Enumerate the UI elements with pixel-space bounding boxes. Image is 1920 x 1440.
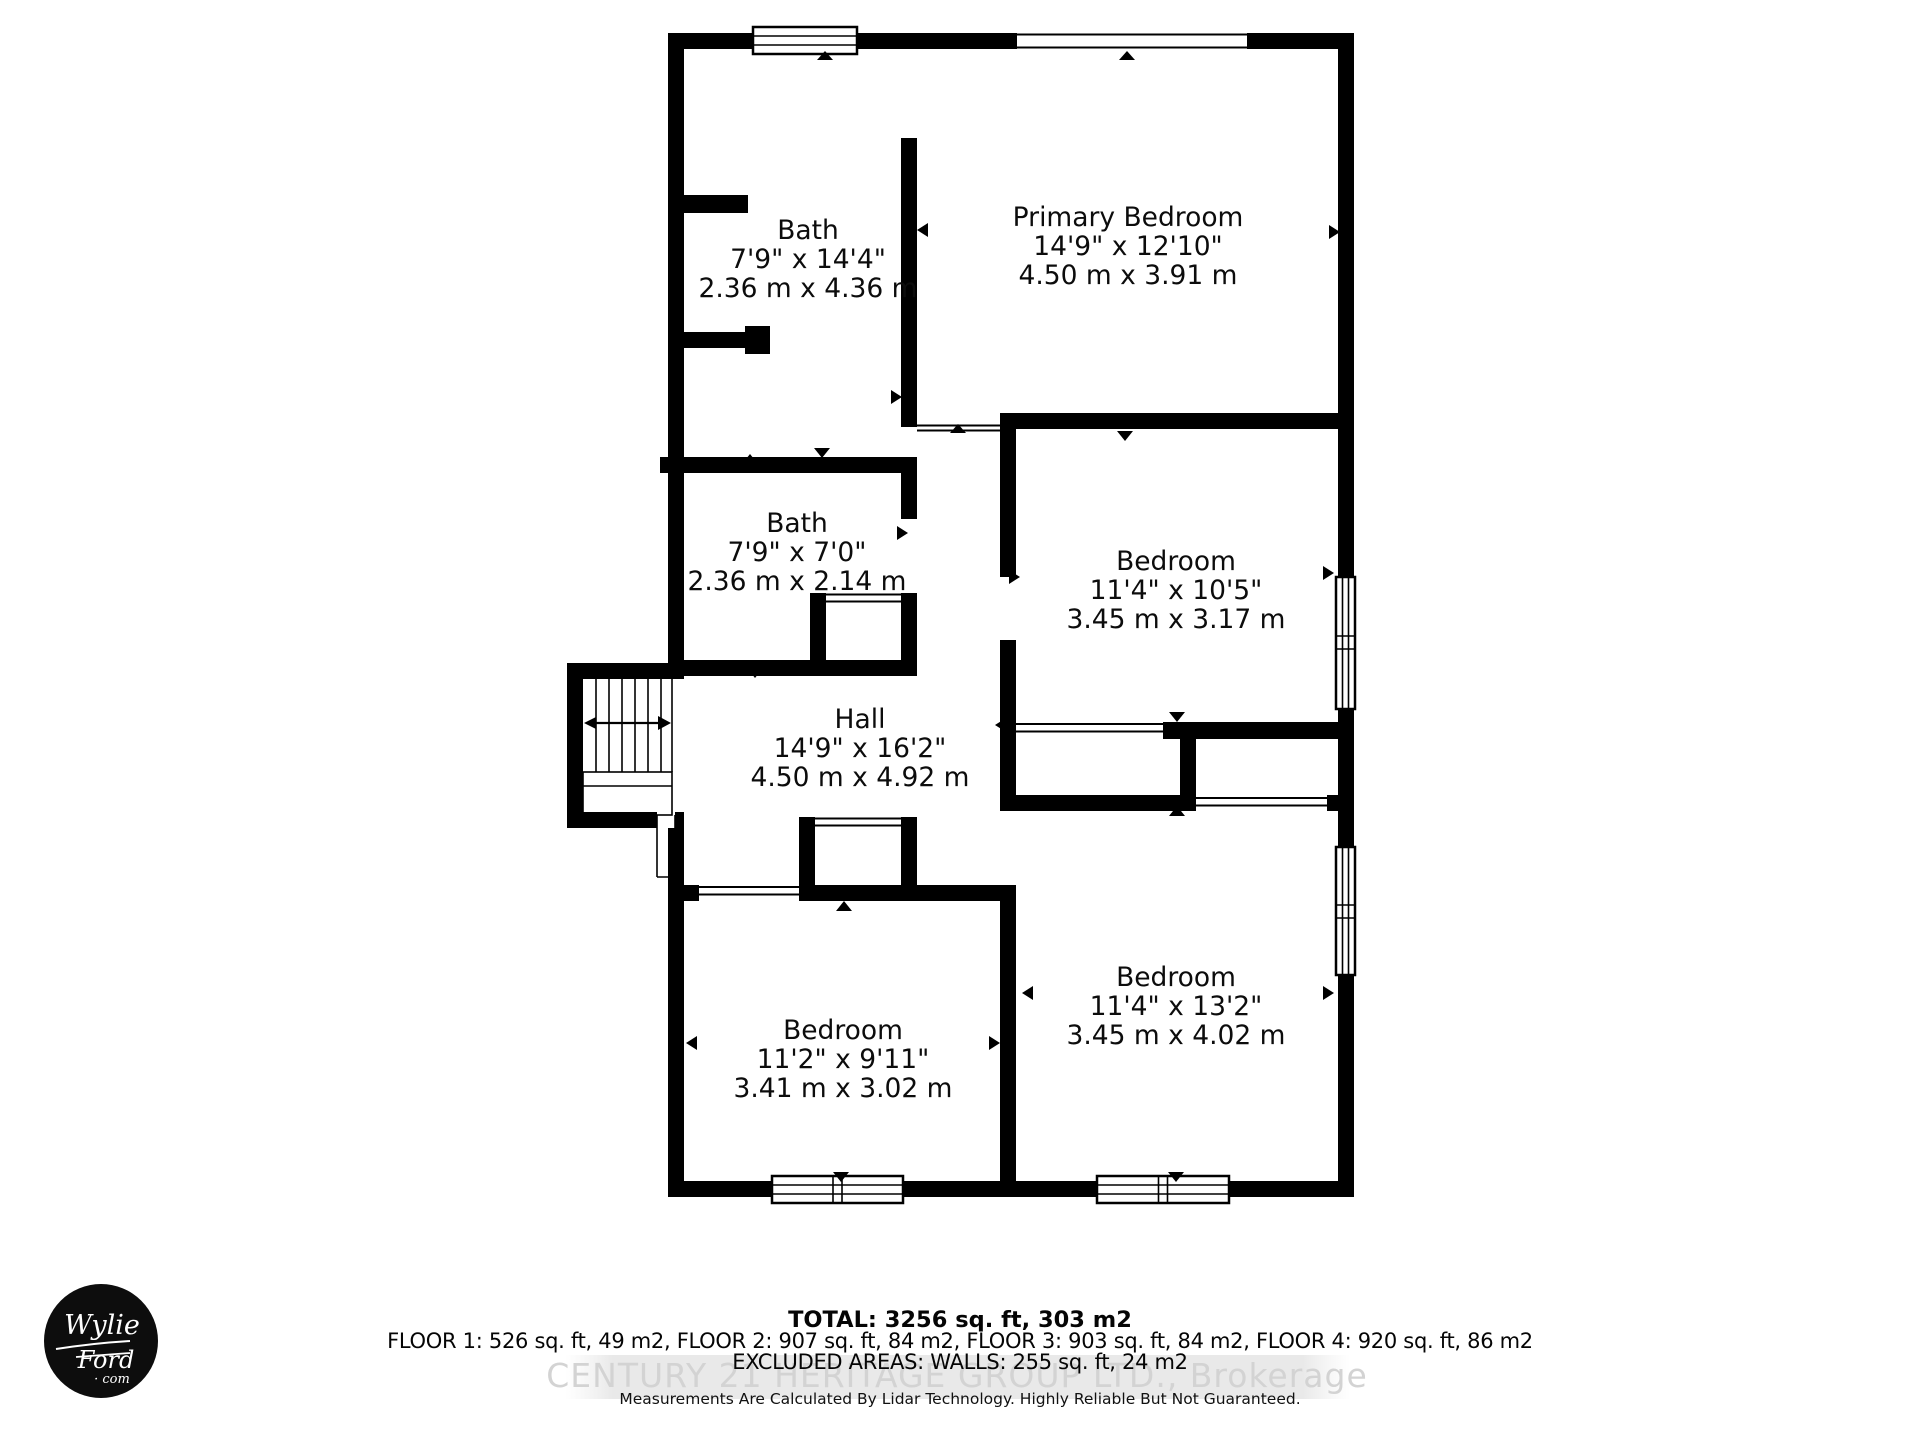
wall-midbed-bottom-cap — [1163, 722, 1187, 739]
wall-closet2-right — [1180, 739, 1196, 803]
room-dim-imperial: 7'9" x 7'0" — [728, 537, 867, 568]
room-name: Bath — [777, 215, 839, 246]
room-dim-metric: 4.50 m x 3.91 m — [1018, 260, 1237, 291]
wall-bath-divider — [660, 457, 917, 473]
floor-plan-canvas: Bath 7'9" x 14'4" 2.36 m x 4.36 m Primar… — [0, 0, 1920, 1440]
logo-line3: · com — [94, 1372, 130, 1387]
room-dim-metric: 3.45 m x 4.02 m — [1066, 1020, 1285, 1051]
room-dim-metric: 3.41 m x 3.02 m — [733, 1073, 952, 1104]
wylie-ford-logo: Wylie Ford · com — [44, 1284, 158, 1398]
logo-line1: Wylie — [64, 1310, 140, 1341]
window-bottom-left-bedroom — [772, 1176, 903, 1203]
room-name: Bath — [766, 508, 828, 539]
room-name: Bedroom — [783, 1015, 903, 1046]
wall-bedroom-br-top-cap — [1327, 795, 1354, 811]
room-dim-imperial: 11'2" x 9'11" — [757, 1044, 930, 1075]
wall-midbed-bottom — [1187, 722, 1354, 739]
wall-bathcloset-left — [810, 593, 826, 676]
wall-closet2-bottom — [1002, 795, 1196, 811]
room-name: Bedroom — [1116, 962, 1236, 993]
room-dim-imperial: 11'4" x 13'2" — [1090, 991, 1263, 1022]
wall-stair-bottom-2 — [675, 812, 684, 828]
wall-bedroom-bl-top — [799, 885, 1016, 901]
wall-left-upper — [668, 33, 684, 663]
summary-disclaimer: Measurements Are Calculated By Lidar Tec… — [619, 1390, 1300, 1408]
window-top-primary — [1017, 33, 1247, 49]
wall-primary-bottom — [1000, 413, 1354, 429]
room-name: Primary Bedroom — [1013, 202, 1244, 233]
logo-line2: Ford — [77, 1346, 135, 1374]
summary-excluded: EXCLUDED AREAS: WALLS: 255 sq. ft, 24 m2 — [732, 1350, 1187, 1374]
room-dim-metric: 2.36 m x 4.36 m — [698, 273, 917, 304]
room-dim-imperial: 7'9" x 14'4" — [730, 244, 886, 275]
room-dim-metric: 3.45 m x 3.17 m — [1066, 604, 1285, 635]
wall-left-lower — [668, 828, 684, 1197]
wall-bath-stub-b-cap — [745, 326, 770, 354]
room-dim-metric: 2.36 m x 2.14 m — [687, 566, 906, 597]
wall-stair-left — [567, 663, 583, 828]
window-top-left — [753, 27, 857, 54]
window-right-bottom — [1336, 847, 1355, 975]
room-label-primary-bedroom: Primary Bedroom 14'9" x 12'10" 4.50 m x … — [1013, 202, 1244, 291]
room-dim-imperial: 14'9" x 12'10" — [1033, 231, 1223, 262]
wall-spine-c — [1000, 885, 1016, 1197]
room-name: Hall — [835, 704, 886, 735]
room-name: Bedroom — [1116, 546, 1236, 577]
room-dim-metric: 4.50 m x 4.92 m — [750, 762, 969, 793]
wall-hall-top-2 — [824, 660, 917, 676]
wall-spine-a — [1000, 413, 1016, 577]
room-dim-imperial: 11'4" x 10'5" — [1090, 575, 1263, 606]
room-dim-imperial: 14'9" x 16'2" — [774, 733, 947, 764]
wall-mainbath-right-upper — [901, 473, 917, 519]
wall-bath-stub-a — [684, 195, 748, 213]
page-background — [0, 0, 1920, 1440]
wall-stair-top — [567, 663, 684, 679]
window-bottom-right-bedroom — [1097, 1176, 1229, 1203]
window-right-middle — [1336, 577, 1355, 709]
